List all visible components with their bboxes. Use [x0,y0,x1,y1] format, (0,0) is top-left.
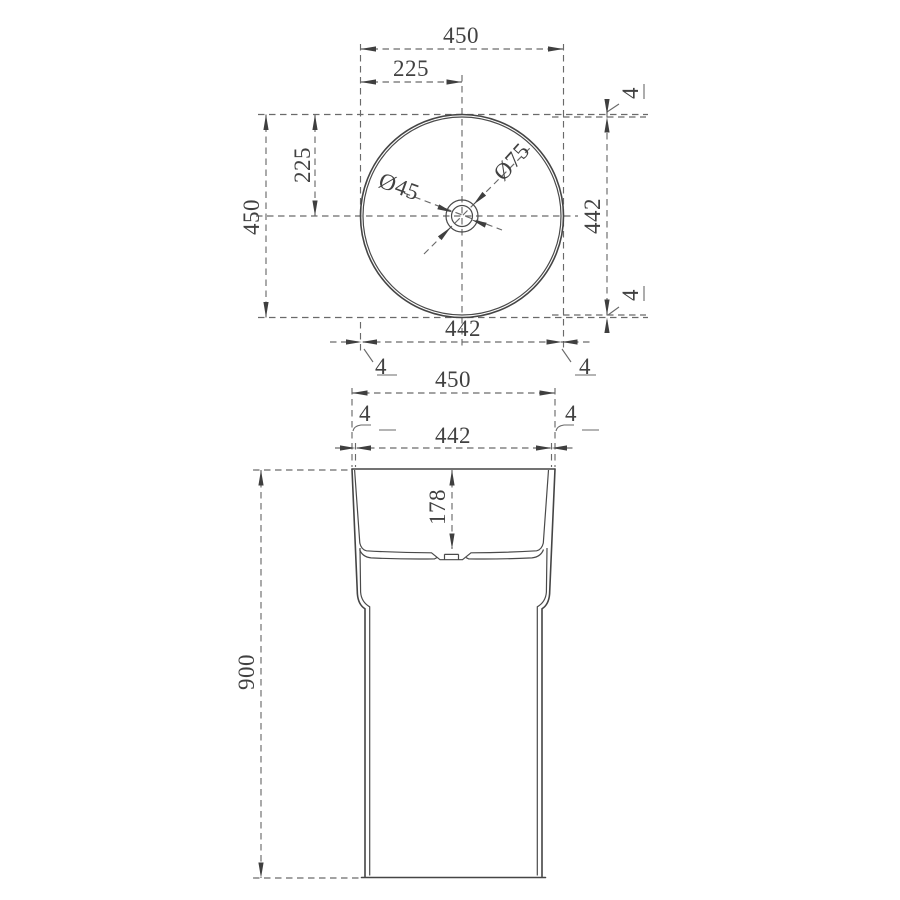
dim-arrowhead [447,79,463,84]
front-view-leaders [353,425,599,431]
dim-label-left-height-half: 225 [290,147,315,183]
dim-label-wall-right: 4 [579,354,591,379]
dim-arrowhead [449,470,454,486]
dim-arrowhead [536,445,552,450]
dim-arrowhead [540,390,556,395]
dim-arrowhead [361,79,377,84]
dim-arrowhead [361,46,377,51]
dim-arrowhead [362,339,378,344]
drain-recess-detail [445,554,459,560]
top-view: 450 225 225 450 442 4 4 442 4 4 Ø45 Ø75 [239,23,648,379]
dim-label-wall-top: 4 [618,87,643,99]
leader-front-wall-right [556,425,599,431]
dim-label-top-width-outer: 450 [443,23,479,48]
dim-arrowhead [437,204,453,214]
dim-label-front-wall-left: 4 [359,401,371,426]
dim-label-basin-depth: 178 [425,489,450,525]
dim-arrowhead [471,192,486,207]
dim-label-left-height-outer: 450 [239,199,264,235]
dim-arrowhead [352,390,368,395]
dim-arrowhead [258,863,263,879]
dim-arrowhead [312,115,317,131]
dim-label-front-wall-right: 4 [565,401,577,426]
drain-outer-circle [446,200,478,232]
dim-arrowhead [346,339,362,344]
dim-arrowhead [356,445,372,450]
pedestal-basin-drawing: 450 225 225 450 442 4 4 442 4 4 Ø45 Ø75 [0,0,900,900]
dim-label-front-width-inner: 442 [435,423,471,448]
dim-label-front-width-outer: 450 [435,367,471,392]
front-view-dimension-lines [261,393,573,878]
dim-label-drain-large: Ø75 [489,138,535,185]
dim-arrowhead [438,225,453,240]
dim-arrowhead [263,115,268,131]
dim-arrowhead [470,217,486,227]
dim-arrowhead [604,117,609,133]
dim-arrowhead [604,318,609,334]
technical-drawing-canvas: 450 225 225 450 442 4 4 442 4 4 Ø45 Ø75 [0,0,900,900]
dim-arrowhead [449,534,454,550]
dim-label-right-height-inner: 442 [580,198,605,234]
dim-arrowhead [340,445,356,450]
dim-label-bottom-width-inner: 442 [445,316,481,341]
top-view-dimension-lines [266,49,607,342]
basin-front-geometry [352,469,555,878]
dim-label-wall-left: 4 [375,354,387,379]
dim-arrowhead [263,302,268,318]
dim-arrowhead [312,201,317,217]
dim-label-drain-small: Ø45 [376,168,423,206]
dim-arrowhead [258,470,263,486]
dim-arrowhead [562,339,578,344]
dim-arrowhead [604,300,609,316]
dim-arrowhead [552,445,568,450]
dim-arrowhead [604,99,609,115]
dim-label-total-height: 900 [234,654,259,690]
dim-label-wall-bottom: 4 [618,289,643,301]
dim-arrowhead [547,339,563,344]
dim-label-top-width-half: 225 [393,56,429,81]
front-view: 450 4 4 442 178 900 [234,367,599,878]
front-view-extension-lines [253,388,555,878]
dim-arrowhead [548,46,564,51]
